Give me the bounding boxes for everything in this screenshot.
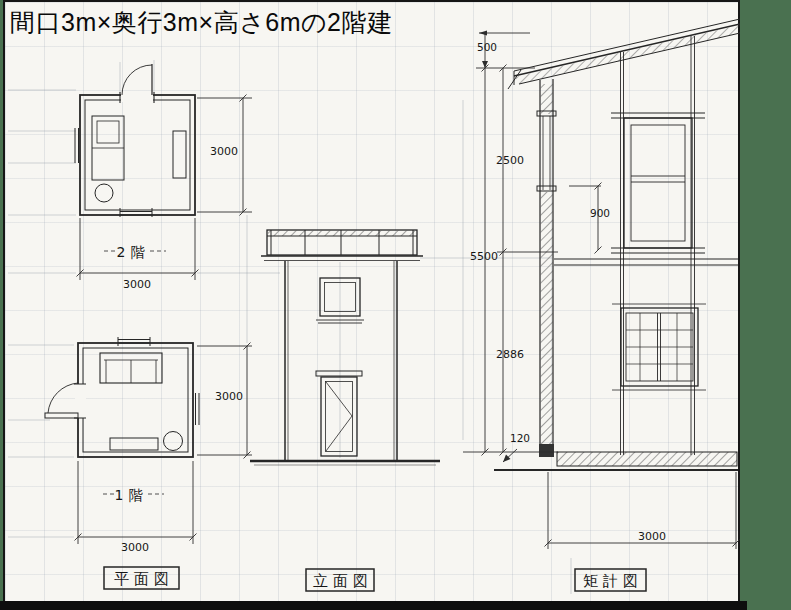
dim-lower-height: 2886 (496, 348, 524, 361)
bottom-black-bar (0, 601, 747, 610)
caption-boxes: 平面図 立面図 矩計図 (104, 567, 646, 591)
dim-1f-plan-depth: 3000 (215, 390, 243, 403)
floor-label-2f: 2階 (117, 244, 150, 260)
dim-1f-plan-width: 3000 (121, 541, 149, 554)
floor-plan-1f: 3000 3000 1階 (45, 337, 252, 554)
floor-label-1f: 1階 (115, 487, 148, 503)
floor-plan-2f: 3000 3000 2階 (75, 64, 252, 291)
dim-slab-thickness: 120 (510, 432, 530, 444)
dim-2f-plan-depth: 3000 (210, 145, 238, 158)
dim-roof-rise: 500 (477, 41, 497, 53)
scanned-drawing-page: 間口3m×奥行3m×高さ6mの2階建 3000 (0, 0, 791, 610)
section-drawing: 500 5500 2500 2886 900 120 3000 (463, 19, 740, 549)
dim-window-height: 900 (590, 207, 610, 219)
caption-section: 矩計図 (583, 572, 643, 590)
dim-2f-plan-width: 3000 (123, 278, 151, 291)
dim-total-height: 5500 (470, 250, 498, 263)
elevation-drawing (250, 230, 440, 465)
caption-floor-plan: 平面図 (114, 570, 174, 588)
dim-section-width: 3000 (638, 530, 666, 543)
dim-upper-height: 2500 (496, 154, 524, 167)
architectural-drawing: 3000 3000 2階 3000 3000 1階 (0, 0, 740, 601)
caption-elevation: 立面図 (313, 572, 373, 590)
